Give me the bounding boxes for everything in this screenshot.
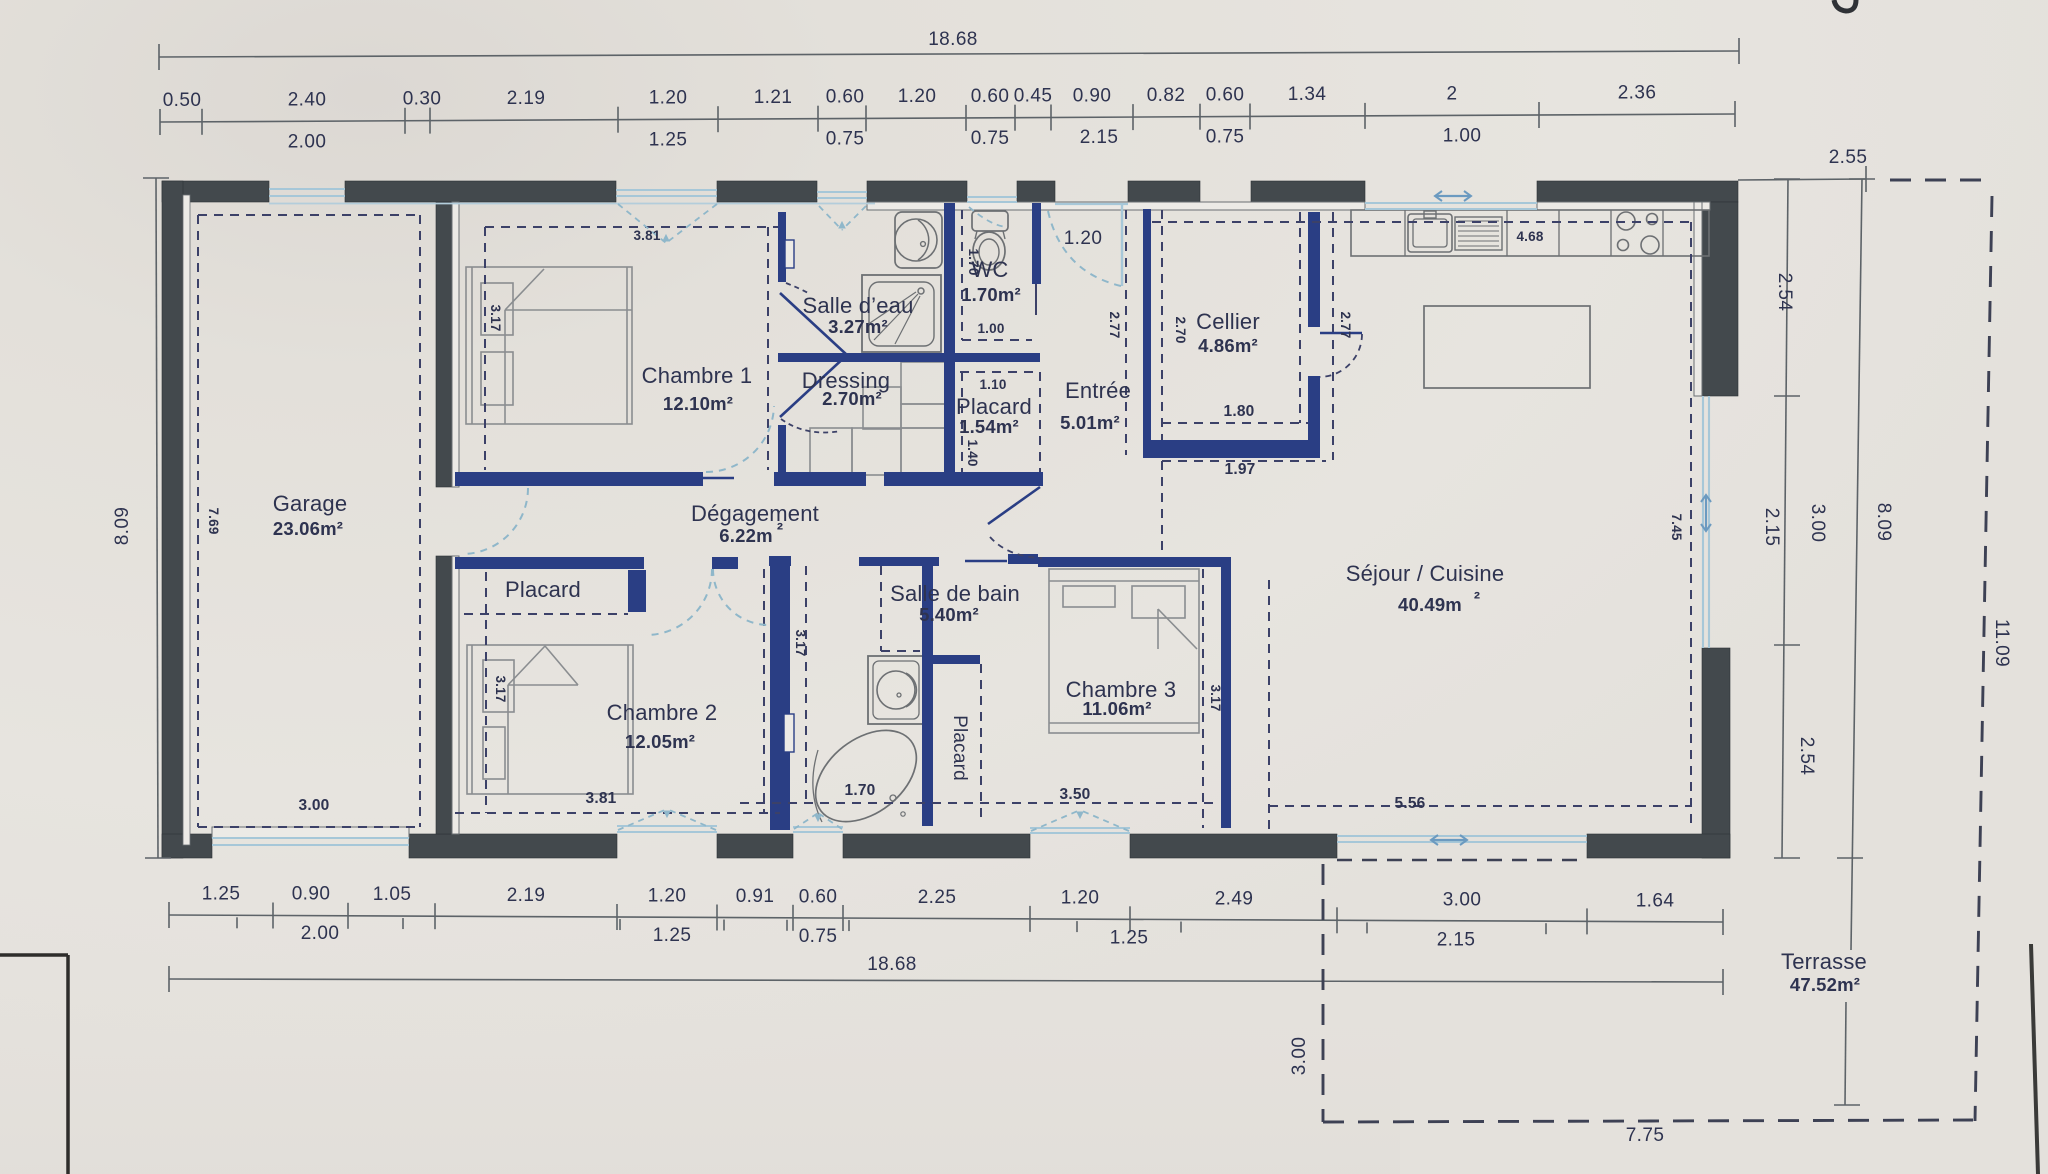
svg-text:1.21: 1.21	[754, 87, 793, 108]
svg-text:7.69: 7.69	[206, 507, 221, 534]
svg-text:2.70: 2.70	[1173, 316, 1188, 343]
svg-text:2.40: 2.40	[288, 89, 327, 110]
svg-text:1.20: 1.20	[1064, 228, 1103, 249]
svg-text:2.00: 2.00	[288, 131, 327, 152]
svg-text:23.06m²: 23.06m²	[273, 518, 343, 539]
svg-text:4.86m²: 4.86m²	[1198, 335, 1258, 356]
svg-text:0.60: 0.60	[971, 86, 1010, 107]
svg-text:0.60: 0.60	[799, 886, 838, 907]
svg-text:40.49m: 40.49m	[1398, 594, 1462, 615]
svg-text:8.09: 8.09	[1873, 503, 1894, 542]
svg-text:Chambre 1: Chambre 1	[642, 363, 753, 388]
svg-text:2.19: 2.19	[507, 88, 546, 109]
svg-text:2.00: 2.00	[301, 923, 340, 944]
svg-text:2.19: 2.19	[507, 885, 546, 906]
svg-text:2.49: 2.49	[1215, 889, 1254, 910]
svg-text:0.45: 0.45	[1014, 86, 1053, 107]
svg-text:5.01m²: 5.01m²	[1060, 412, 1120, 433]
svg-text:3.27m²: 3.27m²	[828, 316, 888, 337]
svg-text:0.50: 0.50	[163, 90, 202, 111]
svg-text:47.52m²: 47.52m²	[1790, 974, 1860, 995]
svg-text:1.00: 1.00	[1443, 125, 1482, 146]
svg-text:8.09: 8.09	[112, 507, 133, 546]
svg-text:3.81: 3.81	[586, 790, 617, 807]
svg-text:1.20: 1.20	[898, 86, 937, 107]
svg-text:0.30: 0.30	[403, 89, 442, 110]
svg-text:Séjour / Cuisine: Séjour / Cuisine	[1346, 561, 1505, 586]
svg-text:1.34: 1.34	[1288, 84, 1327, 105]
svg-text:3.17: 3.17	[488, 304, 503, 331]
svg-text:0.60: 0.60	[1206, 85, 1245, 106]
svg-text:0.75: 0.75	[826, 129, 865, 150]
svg-text:2.55: 2.55	[1829, 147, 1868, 168]
svg-text:Chambre 2: Chambre 2	[607, 700, 718, 725]
svg-text:3.00: 3.00	[1289, 1037, 1310, 1076]
svg-text:2.15: 2.15	[1437, 930, 1476, 951]
svg-text:Cellier: Cellier	[1196, 309, 1260, 334]
svg-text:0.75: 0.75	[1206, 127, 1245, 148]
svg-text:0.75: 0.75	[971, 128, 1010, 149]
svg-text:1.25: 1.25	[653, 925, 692, 946]
svg-text:2.54: 2.54	[1796, 737, 1817, 776]
svg-text:2.54: 2.54	[1774, 273, 1795, 312]
svg-text:Entrée: Entrée	[1065, 378, 1131, 403]
svg-text:0.75: 0.75	[799, 926, 838, 947]
svg-text:1.20: 1.20	[649, 87, 688, 108]
svg-text:1.00: 1.00	[977, 321, 1004, 336]
svg-text:5.56: 5.56	[1395, 795, 1426, 812]
svg-text:6.22m: 6.22m	[719, 525, 772, 546]
svg-text:1.10: 1.10	[979, 377, 1006, 392]
svg-text:4.68: 4.68	[1516, 229, 1543, 244]
svg-text:1.05: 1.05	[373, 884, 412, 905]
svg-text:3.17: 3.17	[793, 629, 808, 656]
svg-text:2.15: 2.15	[1080, 127, 1119, 148]
svg-text:3.50: 3.50	[1060, 786, 1091, 803]
svg-text:11.06m²: 11.06m²	[1082, 698, 1151, 719]
svg-text:Salle de bain: Salle de bain	[890, 581, 1020, 606]
svg-text:12.10m²: 12.10m²	[663, 393, 733, 414]
svg-text:3.00: 3.00	[1443, 890, 1482, 911]
svg-text:Placard: Placard	[505, 577, 581, 602]
svg-text:7.75: 7.75	[1626, 1125, 1665, 1146]
svg-text:18.68: 18.68	[867, 954, 917, 975]
svg-text:Placard: Placard	[949, 715, 970, 781]
svg-text:1.54m²: 1.54m²	[959, 416, 1019, 437]
svg-text:1.70m²: 1.70m²	[961, 284, 1021, 305]
svg-text:1.25: 1.25	[1110, 928, 1149, 949]
svg-text:1.40: 1.40	[965, 439, 980, 466]
svg-text:1.64: 1.64	[1636, 891, 1675, 912]
svg-text:2.15: 2.15	[1761, 508, 1782, 547]
svg-text:0.60: 0.60	[826, 87, 865, 108]
svg-text:1.25: 1.25	[649, 129, 688, 150]
svg-text:12.05m²: 12.05m²	[625, 731, 695, 752]
svg-text:Dégagement: Dégagement	[691, 501, 819, 526]
svg-text:0.82: 0.82	[1147, 85, 1186, 106]
svg-text:11.09: 11.09	[1991, 619, 2012, 667]
svg-text:2.77: 2.77	[1338, 311, 1353, 338]
svg-text:1.70: 1.70	[845, 782, 876, 799]
svg-text:0.91: 0.91	[736, 886, 775, 907]
svg-text:1.25: 1.25	[202, 883, 241, 904]
svg-text:2.77: 2.77	[1107, 311, 1122, 338]
svg-text:2.36: 2.36	[1618, 83, 1657, 104]
svg-text:18.68: 18.68	[928, 29, 978, 50]
svg-text:1.70: 1.70	[966, 248, 981, 275]
svg-text:²: ²	[777, 519, 783, 540]
svg-text:Salle d’eau: Salle d’eau	[802, 293, 913, 318]
svg-text:3.00: 3.00	[299, 797, 330, 814]
svg-text:0.90: 0.90	[1073, 85, 1112, 106]
svg-text:2.25: 2.25	[918, 887, 957, 908]
svg-text:3.17: 3.17	[1208, 684, 1223, 711]
svg-text:1.20: 1.20	[648, 886, 687, 907]
svg-text:2: 2	[1447, 83, 1458, 104]
svg-text:5.40m²: 5.40m²	[919, 604, 979, 625]
svg-text:2.70m²: 2.70m²	[822, 388, 882, 409]
svg-text:²: ²	[1474, 588, 1480, 609]
svg-text:Garage: Garage	[273, 491, 348, 516]
svg-text:1.80: 1.80	[1224, 403, 1255, 420]
svg-text:7.45: 7.45	[1669, 513, 1684, 540]
svg-text:Terrasse: Terrasse	[1781, 949, 1867, 974]
svg-text:3.81: 3.81	[633, 228, 660, 243]
svg-text:3.00: 3.00	[1807, 504, 1828, 543]
svg-text:3.17: 3.17	[493, 675, 508, 702]
svg-text:1.20: 1.20	[1061, 888, 1100, 909]
svg-text:1.97: 1.97	[1225, 461, 1256, 478]
svg-text:0.90: 0.90	[292, 884, 331, 905]
